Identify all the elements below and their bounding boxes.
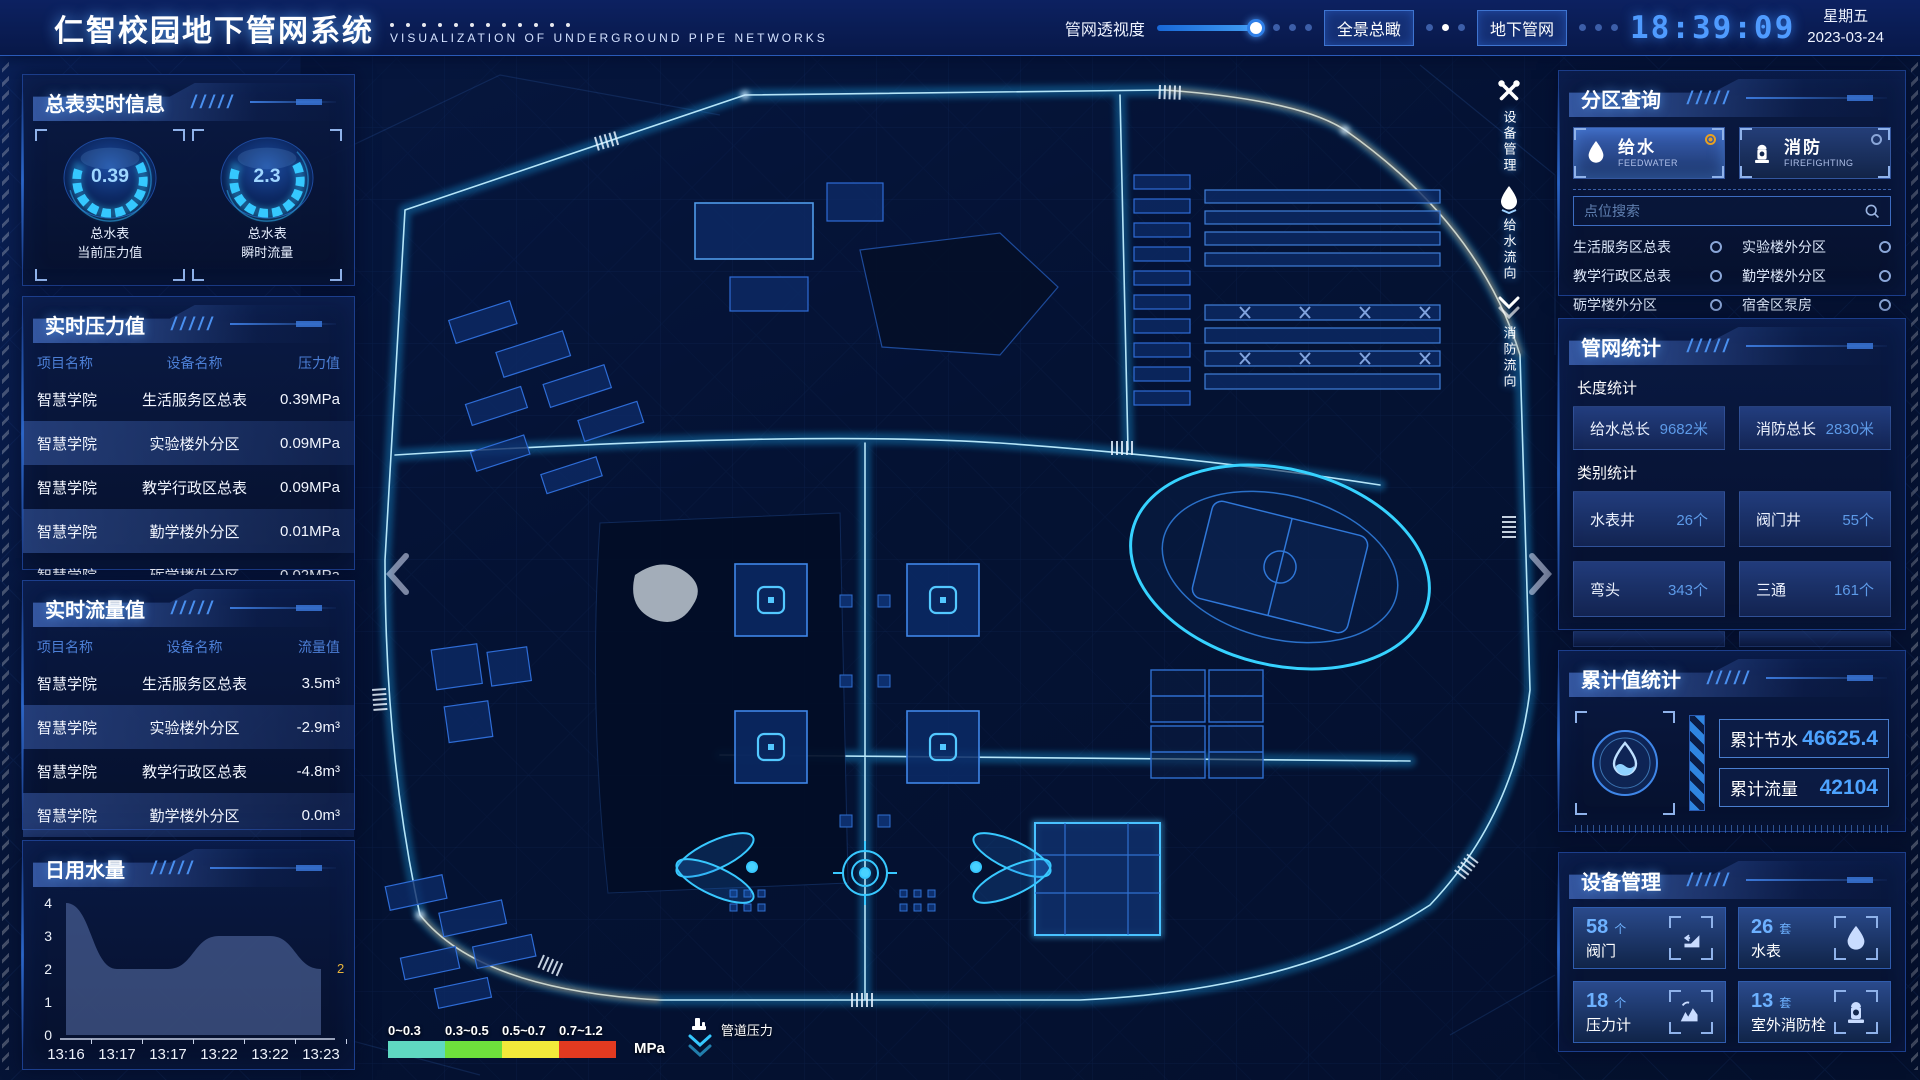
slash-decoration: ///// [1707, 668, 1752, 689]
gymnasium [1035, 823, 1160, 935]
date: 2023-03-24 [1807, 28, 1884, 48]
dots-decoration [1273, 24, 1312, 31]
title-dots-decoration [390, 23, 828, 27]
search-box [1573, 196, 1891, 226]
valve-icon [1669, 916, 1713, 960]
chevrons-down-icon [1495, 292, 1523, 322]
table-row[interactable]: 智慧学院教学行政区总表0.09MPa [23, 465, 354, 509]
legend-segments: 0~0.30.3~0.50.5~0.70.7~1.2 [388, 1023, 616, 1058]
svg-text:13:22: 13:22 [200, 1046, 238, 1063]
hydrant-icon [1750, 140, 1774, 166]
ruler-decoration [1575, 825, 1889, 833]
table-row[interactable]: 智慧学院实验楼外分区-2.9m³ [23, 705, 354, 749]
zone-item[interactable]: 砺学楼外分区 [1573, 290, 1722, 318]
panel-realtime-pressure: 实时压力值 ///// 项目名称 设备名称 压力值 智慧学院生活服务区总表0.3… [22, 296, 355, 570]
pipe-pressure-indicator[interactable]: 管道压力 [687, 1016, 773, 1058]
table-row[interactable]: 智慧学院实验楼外分区0.09MPa [23, 421, 354, 465]
cumulative-water-icon [1575, 711, 1675, 815]
dashboard: 设备管理 给水流向 消防流向 0~0.30.3~0.50.5~0.70.7~1.… [0, 0, 1920, 1080]
legend-segment: 0.7~1.2 [559, 1023, 616, 1058]
svg-text:13:22: 13:22 [251, 1046, 289, 1063]
slash-decoration: ///// [1687, 88, 1732, 109]
slash-decoration: ///// [1687, 870, 1732, 891]
panel-header: 管网统计 ///// [1569, 327, 1895, 365]
stat-card: 三通 161个 [1739, 561, 1891, 617]
legend-segment: 0.5~0.7 [502, 1023, 559, 1058]
svg-text:1: 1 [44, 994, 52, 1010]
pressure-rows: 智慧学院生活服务区总表0.39MPa智慧学院实验楼外分区0.09MPa智慧学院教… [23, 377, 354, 575]
search-input[interactable] [1584, 203, 1856, 219]
daily-water-chart: 13:1613:1713:1713:2213:2213:23012342 [26, 889, 351, 1069]
panel-header: 累计值统计 ///// [1569, 659, 1895, 697]
tab-feedwater[interactable]: 给水 FEEDWATER [1573, 127, 1725, 179]
gauge-pressure: 0.39 总水表 当前压力值 [35, 129, 185, 281]
date-box: 星期五 2023-03-24 [1807, 7, 1884, 48]
flow-rows: 智慧学院生活服务区总表3.5m³智慧学院实验楼外分区-2.9m³智慧学院教学行政… [23, 661, 354, 837]
legend-segment: 0.3~0.5 [445, 1023, 502, 1058]
panel-header: 实时流量值 ///// [33, 589, 344, 627]
gauge-label: 总水表 [77, 225, 142, 244]
stat-card: 弯头 343个 [1573, 561, 1725, 617]
top-controls: 管网透视度 全景总瞰 地下管网 18:39:09 星期五 2023-03-24 [1065, 7, 1884, 48]
device-card-watermeter[interactable]: 26套 水表 [1738, 907, 1891, 969]
pond [596, 513, 849, 893]
slash-decoration: ///// [171, 598, 216, 619]
stat-card-clipped [1739, 631, 1891, 647]
panel-zone-query: 分区查询 ///// 给水 FEEDWATER [1558, 70, 1906, 296]
svg-text:3: 3 [44, 928, 52, 944]
gauge-flow: 2.3 总水表 瞬时流量 [192, 129, 342, 281]
panel-daily-water: 日用水量 ///// 13:1613:1713:1713:2213:2213:2… [22, 840, 355, 1070]
svg-text:13:17: 13:17 [98, 1046, 136, 1063]
length-stat-cards: 给水总长 9682米 消防总长 2830米 [1559, 406, 1905, 450]
overview-button[interactable]: 全景总瞰 [1324, 10, 1414, 46]
radio-icon[interactable] [1879, 241, 1891, 253]
svg-text:0.39: 0.39 [91, 165, 129, 187]
gauge-label: 总水表 [241, 225, 293, 244]
pipe-pressure-icon [687, 1016, 713, 1058]
water-drop-icon [1496, 184, 1522, 214]
stat-card: 阀门井 55个 [1739, 491, 1891, 547]
gauge-sublabel: 瞬时流量 [241, 244, 293, 263]
slash-decoration: ///// [151, 858, 196, 879]
right-edge-decoration [1911, 62, 1918, 1070]
radio-icon[interactable] [1879, 270, 1891, 282]
radio-icon[interactable] [1710, 299, 1722, 311]
radio-icon[interactable] [1879, 299, 1891, 311]
length-stats-label: 长度统计 [1559, 365, 1905, 406]
map-next-arrow[interactable] [1526, 552, 1556, 596]
svg-text:4: 4 [44, 895, 52, 911]
table-row[interactable]: 智慧学院砺学楼外分区0.02MPa [23, 553, 354, 575]
table-header: 项目名称 设备名称 压力值 [23, 343, 354, 377]
table-row[interactable]: 智慧学院生活服务区总表0.39MPa [23, 377, 354, 421]
panel-realtime-meter: 总表实时信息 ///// 0.39 总水表 当前压力值 [22, 74, 355, 286]
tool-fire-flow[interactable]: 消防流向 [1495, 292, 1523, 390]
gauge-dial: 0.39 [54, 131, 166, 225]
panel-header: 总表实时信息 ///// [33, 83, 344, 121]
category-stats-label: 类别统计 [1559, 450, 1905, 491]
tool-feedwater-flow[interactable]: 给水流向 [1496, 184, 1522, 282]
pressure-gauge-icon [1669, 990, 1713, 1034]
svg-text:2: 2 [44, 961, 52, 977]
brand: 仁智校园地下管网系统 VISUALIZATION OF UNDERGROUND … [54, 6, 828, 50]
svg-text:2.3: 2.3 [254, 165, 281, 187]
top-bar: 仁智校园地下管网系统 VISUALIZATION OF UNDERGROUND … [0, 0, 1920, 56]
legend-unit: MPa [634, 1040, 665, 1057]
svg-text:13:16: 13:16 [47, 1046, 85, 1063]
table-header: 项目名称 设备名称 流量值 [23, 627, 354, 661]
device-card-pressure-gauge[interactable]: 18个 压力计 [1573, 981, 1726, 1043]
clock: 18:39:09 [1630, 10, 1795, 46]
zone-item[interactable]: 勤学楼外分区 [1742, 261, 1891, 290]
zone-item[interactable]: 宿舍区泵房 [1742, 290, 1891, 318]
gauge-dial: 2.3 [211, 131, 323, 225]
stat-card: 给水总长 9682米 [1573, 406, 1725, 450]
stat-card-clipped [1573, 631, 1725, 647]
svg-text:13:23: 13:23 [302, 1046, 340, 1063]
app-title: 仁智校园地下管网系统 [54, 6, 374, 50]
campus-map[interactable] [300, 55, 1560, 1080]
zone-item[interactable]: 教学行政区总表 [1573, 261, 1722, 290]
device-card-valve[interactable]: 58个 阀门 [1573, 907, 1726, 969]
category-stat-cards: 水表井 26个 阀门井 55个 弯头 343个 三通 161个 [1559, 491, 1905, 647]
pipe-opacity-slider[interactable] [1157, 25, 1261, 31]
map-tool-stack: 设备管理 给水流向 消防流向 [1494, 76, 1524, 390]
wrench-cross-icon [1494, 76, 1524, 106]
cumulative-flow-row: 累计流量 42104 [1719, 768, 1889, 807]
slash-decoration: ///// [1687, 336, 1732, 357]
dots-decoration [1426, 24, 1465, 31]
zone-tabs: 给水 FEEDWATER 消防 FIREFIGHTING [1559, 117, 1905, 187]
pressure-legend: 0~0.30.3~0.50.5~0.70.7~1.2 MPa 管道压力 [388, 1016, 773, 1058]
pipe-opacity-label: 管网透视度 [1065, 16, 1145, 40]
table-row[interactable]: 智慧学院生活服务区总表3.5m³ [23, 661, 354, 705]
zone-item[interactable]: 生活服务区总表 [1573, 232, 1722, 261]
panel-header: 设备管理 ///// [1569, 861, 1895, 899]
panel-device-management: 设备管理 ///// 58个 阀门 26套 水 [1558, 852, 1906, 1052]
hazard-stripe-decoration [1689, 715, 1705, 811]
dots-decoration [1579, 24, 1618, 31]
app-subtitle: VISUALIZATION OF UNDERGROUND PIPE NETWOR… [390, 31, 828, 45]
svg-text:13:17: 13:17 [149, 1046, 187, 1063]
legend-segment: 0~0.3 [388, 1023, 445, 1058]
slash-decoration: ///// [191, 92, 236, 113]
cumulative-saved-row: 累计节水 46625.4 [1719, 719, 1889, 758]
stat-card: 水表井 26个 [1573, 491, 1725, 547]
radio-selected-icon [1705, 134, 1716, 145]
device-card-hydrant[interactable]: 13套 室外消防栓 [1738, 981, 1891, 1043]
panel-header: 实时压力值 ///// [33, 305, 344, 343]
dashed-divider [1573, 189, 1891, 190]
water-meter-icon [1834, 916, 1878, 960]
stat-card: 消防总长 2830米 [1739, 406, 1891, 450]
tool-device[interactable]: 设备管理 [1494, 76, 1524, 174]
panel-header: 日用水量 ///// [33, 849, 344, 887]
left-edge-decoration [2, 62, 9, 1070]
table-row[interactable]: 智慧学院教学行政区总表-4.8m³ [23, 749, 354, 793]
water-drop-icon [1584, 139, 1608, 167]
map-prev-arrow[interactable] [382, 552, 412, 596]
panel-network-stats: 管网统计 ///// 长度统计 给水总长 9682米 消防总长 2830米 类别… [1558, 318, 1906, 630]
gauge-sublabel: 当前压力值 [77, 244, 142, 263]
weekday: 星期五 [1807, 7, 1884, 27]
radio-icon [1871, 134, 1882, 145]
svg-text:0: 0 [44, 1027, 52, 1043]
svg-text:2: 2 [337, 961, 344, 976]
tab-firefighting[interactable]: 消防 FIREFIGHTING [1739, 127, 1891, 179]
panel-cumulative-stats: 累计值统计 ///// 累计节水 46625.4 累计流量 [1558, 650, 1906, 832]
gauge-row: 0.39 总水表 当前压力值 2.3 总水表 瞬时流量 [23, 121, 354, 281]
slash-decoration: ///// [171, 314, 216, 335]
zone-item[interactable]: 实验楼外分区 [1742, 232, 1891, 261]
panel-realtime-flow: 实时流量值 ///// 项目名称 设备名称 流量值 智慧学院生活服务区总表3.5… [22, 580, 355, 830]
zone-items: 生活服务区总表实验楼外分区教学行政区总表勤学楼外分区砺学楼外分区宿舍区泵房 [1559, 232, 1905, 318]
search-icon[interactable] [1864, 203, 1880, 219]
hydrant-icon [1834, 990, 1878, 1034]
table-row[interactable]: 智慧学院勤学楼外分区0.0m³ [23, 793, 354, 837]
radio-icon[interactable] [1710, 241, 1722, 253]
table-row[interactable]: 智慧学院勤学楼外分区0.01MPa [23, 509, 354, 553]
slider-thumb[interactable] [1247, 19, 1265, 37]
underground-button[interactable]: 地下管网 [1477, 10, 1567, 46]
panel-header: 分区查询 ///// [1569, 79, 1895, 117]
radio-icon[interactable] [1710, 270, 1722, 282]
